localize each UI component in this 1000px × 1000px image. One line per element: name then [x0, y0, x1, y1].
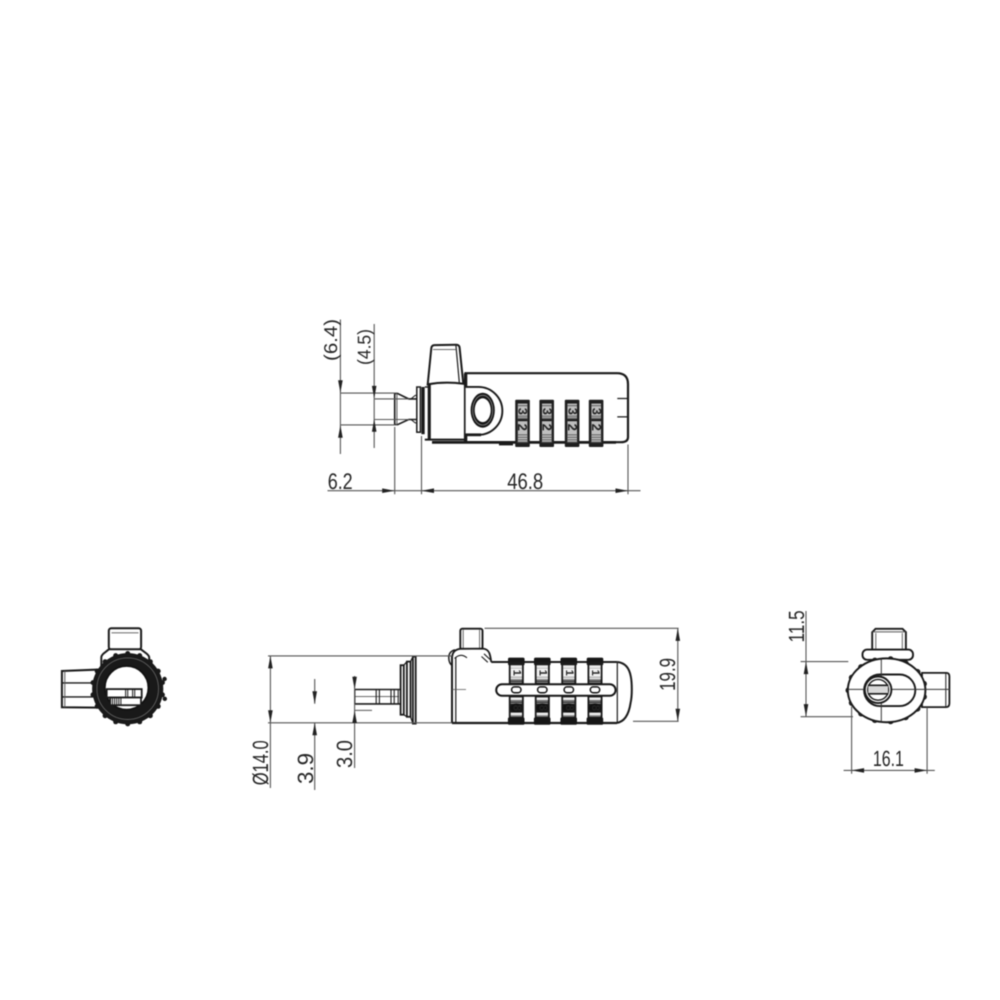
svg-text:11.5: 11.5: [784, 610, 809, 642]
svg-text:1: 1: [510, 670, 522, 676]
svg-text:2: 2: [515, 424, 530, 431]
svg-text:6.2: 6.2: [328, 469, 353, 494]
svg-text:(4.5): (4.5): [354, 329, 375, 365]
svg-text:3.0: 3.0: [332, 740, 357, 768]
svg-text:3.9: 3.9: [293, 753, 318, 784]
svg-text:(6.4): (6.4): [320, 319, 341, 361]
svg-text:46.8: 46.8: [507, 469, 543, 494]
svg-text:16.1: 16.1: [873, 746, 904, 771]
svg-text:19.9: 19.9: [655, 658, 680, 691]
svg-text:8: 8: [510, 705, 522, 712]
svg-text:Ø14.0: Ø14.0: [248, 740, 273, 785]
svg-text:3: 3: [516, 408, 530, 415]
